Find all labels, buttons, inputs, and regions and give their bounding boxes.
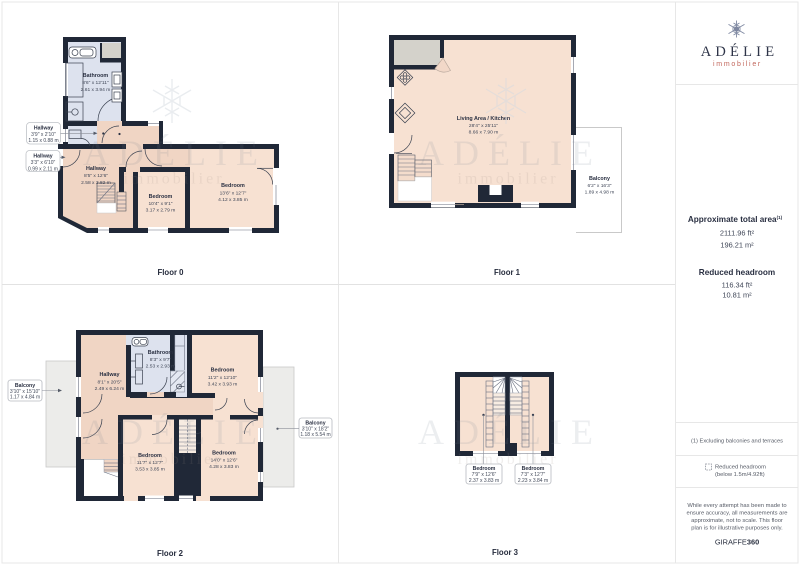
svg-text:28'4" x 25'11": 28'4" x 25'11" [469, 123, 498, 129]
svg-text:116.34 ft²: 116.34 ft² [722, 281, 753, 290]
svg-text:Bedroom: Bedroom [211, 368, 235, 374]
svg-text:immobilier: immobilier [713, 61, 762, 68]
svg-text:6'2" x 16'3": 6'2" x 16'3" [587, 183, 611, 189]
svg-text:(1) Excluding balconies and te: (1) Excluding balconies and terraces [691, 439, 783, 445]
svg-text:Bedroom: Bedroom [522, 466, 545, 472]
svg-text:immobilier: immobilier [457, 171, 558, 188]
svg-text:Living Area / Kitchen: Living Area / Kitchen [457, 116, 510, 122]
svg-text:(below 1.5m/4.92ft): (below 1.5m/4.92ft) [715, 472, 765, 478]
svg-text:Hallway: Hallway [33, 153, 52, 159]
svg-text:3'9" x 2'10": 3'9" x 2'10" [31, 132, 56, 138]
svg-text:2.49 x 6.24 m: 2.49 x 6.24 m [95, 386, 125, 392]
svg-text:immobilier: immobilier [121, 451, 222, 468]
svg-text:2.53 x 2.93 m: 2.53 x 2.93 m [146, 364, 176, 370]
svg-text:4.12 x 3.85 m: 4.12 x 3.85 m [218, 197, 248, 203]
svg-text:ADÉLIE: ADÉLIE [701, 43, 779, 60]
svg-text:plan is for illustrative purpo: plan is for illustrative purposes only. [691, 526, 783, 532]
svg-text:Bedroom: Bedroom [473, 466, 496, 472]
svg-text:Reduced headroom: Reduced headroom [715, 465, 766, 471]
svg-text:approximate, not to scale. Thi: approximate, not to scale. This floor [691, 518, 783, 524]
svg-text:8'3" x 9'7": 8'3" x 9'7" [150, 357, 172, 363]
svg-text:Floor 1: Floor 1 [494, 268, 521, 277]
svg-text:8'1" x 20'5": 8'1" x 20'5" [97, 380, 121, 386]
svg-text:2.58 x 3.82 m: 2.58 x 3.82 m [81, 180, 111, 186]
svg-text:Bedroom: Bedroom [221, 183, 245, 189]
svg-text:3.17 x 2.79 m: 3.17 x 2.79 m [146, 208, 176, 214]
svg-text:Bathroom: Bathroom [148, 350, 174, 356]
svg-text:1.15 x 0.88 m: 1.15 x 0.88 m [28, 138, 58, 144]
svg-text:2.37 x 3.83 m: 2.37 x 3.83 m [469, 478, 499, 484]
svg-text:8'6" x 12'11": 8'6" x 12'11" [82, 80, 109, 86]
svg-text:2.61 x 3.94 m: 2.61 x 3.94 m [81, 87, 111, 93]
svg-text:ADÉLIE: ADÉLIE [82, 412, 266, 452]
svg-text:Reduced headroom: Reduced headroom [699, 268, 775, 277]
svg-text:Floor 3: Floor 3 [492, 548, 519, 557]
svg-text:GIRAFFE360: GIRAFFE360 [715, 538, 759, 547]
svg-text:10.81 m²: 10.81 m² [722, 291, 752, 300]
svg-text:ADÉLIE: ADÉLIE [418, 133, 602, 173]
svg-text:Approximate total area(1): Approximate total area(1) [688, 215, 783, 224]
svg-text:While every attempt has been m: While every attempt has been made to [687, 503, 786, 509]
svg-text:1.89 x 4.98 m: 1.89 x 4.98 m [585, 190, 615, 196]
svg-text:3.42 x 3.93 m: 3.42 x 3.93 m [208, 382, 238, 388]
svg-text:3'3" x 6'10": 3'3" x 6'10" [31, 160, 56, 166]
svg-text:Hallway: Hallway [34, 125, 53, 131]
svg-text:Balcony: Balcony [589, 176, 610, 182]
svg-text:Floor 2: Floor 2 [157, 549, 184, 558]
svg-text:Hallway: Hallway [99, 372, 119, 378]
svg-text:ensure accuracy, all measureme: ensure accuracy, all measurements are [686, 511, 787, 517]
svg-text:Floor 0: Floor 0 [158, 268, 185, 277]
svg-text:8'5" x 12'6": 8'5" x 12'6" [84, 173, 108, 179]
svg-text:11'2" x 12'10": 11'2" x 12'10" [208, 375, 237, 381]
svg-text:13'6" x 12'7": 13'6" x 12'7" [220, 191, 247, 197]
svg-text:2.23 x 3.84 m: 2.23 x 3.84 m [518, 478, 548, 484]
svg-text:1.18 x 5.54 m: 1.18 x 5.54 m [300, 432, 330, 438]
svg-text:1.17 x 4.84 m: 1.17 x 4.84 m [10, 395, 40, 401]
svg-text:Bedroom: Bedroom [149, 194, 173, 200]
svg-text:ADÉLIE: ADÉLIE [418, 412, 602, 452]
svg-text:immobilier: immobilier [123, 171, 224, 188]
svg-text:2111.96 ft²: 2111.96 ft² [720, 229, 755, 238]
svg-text:196.21 m²: 196.21 m² [720, 241, 754, 250]
svg-text:Bathroom: Bathroom [83, 73, 109, 79]
svg-text:0.99 x 2.11 m: 0.99 x 2.11 m [28, 166, 58, 172]
svg-text:10'4" x 9'1": 10'4" x 9'1" [148, 201, 172, 207]
svg-text:ADÉLIE: ADÉLIE [83, 133, 267, 173]
